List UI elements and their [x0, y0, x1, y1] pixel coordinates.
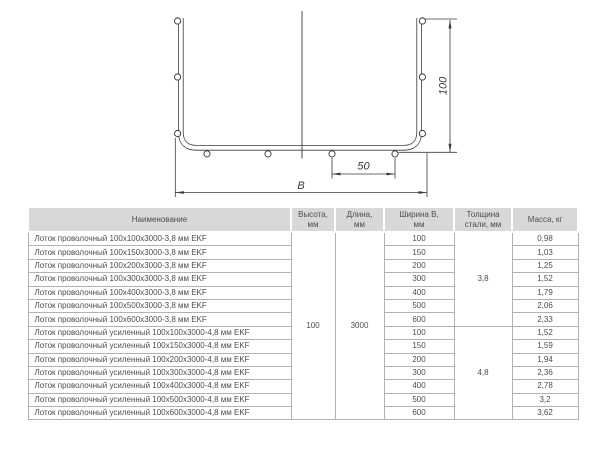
column-header-thickness: Толщинастали, мм [454, 208, 512, 232]
cell-width: 100 [384, 326, 454, 339]
cell-mass: 3,62 [512, 407, 578, 420]
column-header-width: Ширина В,мм [384, 208, 454, 232]
cell-name: Лоток проволочный 100х600х3000-3,8 мм EK… [28, 313, 291, 326]
cell-name: Лоток проволочный усиленный 100х150х3000… [28, 340, 291, 353]
cell-name: Лоток проволочный 100х100х3000-3,8 мм EK… [28, 232, 291, 246]
spec-table: НаименованиеВысота,ммДлина,ммШирина В,мм… [27, 208, 579, 420]
cell-name: Лоток проволочный 100х150х3000-3,8 мм EK… [28, 246, 291, 259]
cell-width: 500 [384, 393, 454, 406]
column-header-mass: Масса, кг [512, 208, 578, 232]
table-header: НаименованиеВысота,ммДлина,ммШирина В,мм… [28, 208, 578, 232]
cell-mass: 1,59 [512, 340, 578, 353]
cell-width: 600 [384, 407, 454, 420]
cell-mass: 1,25 [512, 259, 578, 272]
spacing-dim-label: 50 [357, 161, 370, 173]
cell-width: 150 [384, 246, 454, 259]
table-row: Лоток проволочный 100х100х3000-3,8 мм EK… [28, 232, 578, 246]
column-header-length: Длина,мм [335, 208, 384, 232]
tray-tube-inner [181, 18, 419, 148]
cell-width: 500 [384, 299, 454, 312]
cell-mass: 1,52 [512, 326, 578, 339]
cell-mass: 2,06 [512, 299, 578, 312]
cell-mass: 2,78 [512, 380, 578, 393]
cell-width: 400 [384, 286, 454, 299]
cell-mass: 0,98 [512, 232, 578, 246]
width-dim-label: B [297, 180, 304, 192]
cell-name: Лоток проволочный 100х200х3000-3,8 мм EK… [28, 259, 291, 272]
cell-width: 600 [384, 313, 454, 326]
cell-mass: 1,52 [512, 273, 578, 286]
cell-mass: 1,79 [512, 286, 578, 299]
cell-name: Лоток проволочный 100х500х3000-3,8 мм EK… [28, 299, 291, 312]
column-header-name: Наименование [28, 208, 291, 232]
cell-width: 200 [384, 259, 454, 272]
cell-width: 300 [384, 273, 454, 286]
cell-thickness-group: 3,8 [454, 232, 512, 326]
tray-tube-outline [181, 18, 419, 148]
cell-thickness-group: 4,8 [454, 326, 512, 420]
cell-width: 400 [384, 380, 454, 393]
cell-length-shared: 3000 [335, 232, 384, 420]
cell-height-shared: 100 [291, 232, 335, 420]
cell-mass: 1,94 [512, 353, 578, 366]
cell-name: Лоток проволочный 100х400х3000-3,8 мм EK… [28, 286, 291, 299]
cell-name: Лоток проволочный усиленный 100х600х3000… [28, 407, 291, 420]
cell-width: 150 [384, 340, 454, 353]
cell-width: 100 [384, 232, 454, 246]
cell-name: Лоток проволочный усиленный 100х300х3000… [28, 366, 291, 379]
cell-mass: 2,36 [512, 366, 578, 379]
cell-width: 200 [384, 353, 454, 366]
cell-mass: 2,33 [512, 313, 578, 326]
bottom-wire-circles [204, 151, 398, 157]
cell-mass: 1,03 [512, 246, 578, 259]
column-header-height: Высота,мм [291, 208, 335, 232]
cell-name: Лоток проволочный усиленный 100х200х3000… [28, 353, 291, 366]
cell-name: Лоток проволочный 100х300х3000-3,8 мм EK… [28, 273, 291, 286]
cell-name: Лоток проволочный усиленный 100х100х3000… [28, 326, 291, 339]
height-dim-label: 100 [438, 76, 450, 95]
cell-width: 300 [384, 366, 454, 379]
cell-name: Лоток проволочный усиленный 100х400х3000… [28, 380, 291, 393]
cell-mass: 3,2 [512, 393, 578, 406]
cell-name: Лоток проволочный усиленный 100х500х3000… [28, 393, 291, 406]
wire-tray-drawing: 100 50 B [0, 0, 600, 205]
